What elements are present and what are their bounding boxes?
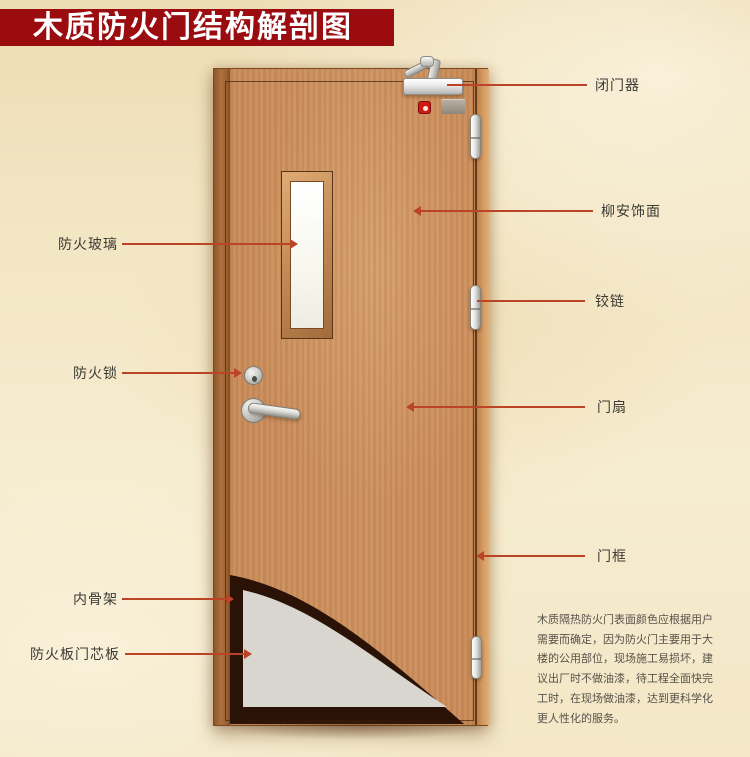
product-description: 木质隔热防火门表面颜色应根据用户 需要而确定，因为防火门主要用于大 楼的公用部位… [537,611,723,729]
label-fire-lock: 防火锁 [18,365,118,381]
leader-line-door-closer [447,84,587,86]
arrow-fire-lock [234,368,242,378]
label-fire-glass: 防火玻璃 [18,236,118,252]
title-banner: 木质防火门结构解剖图 [0,9,394,46]
leader-line-fire-board-core [125,653,244,655]
cutaway-section [214,69,489,727]
door-closer-pivot [420,56,434,67]
fire-board-core-layer [243,590,447,707]
description-line: 议出厂时不做油漆，待工程全面快完 [537,670,723,690]
label-lauan-veneer: 柳安饰面 [601,203,661,219]
description-line: 更人性化的服务。 [537,710,723,730]
leader-line-fire-glass [122,243,290,245]
leader-line-fire-lock [122,372,234,374]
poster: 木质防火门结构解剖图 防火玻璃 防火锁 内骨架 防火板门芯板 [0,0,750,757]
label-hinge: 铰链 [595,293,625,309]
label-fire-board-core: 防火板门芯板 [20,646,120,662]
label-door-closer: 闭门器 [595,77,640,93]
label-door-frame: 门框 [597,548,627,564]
fire-door-illustration [213,68,488,726]
label-inner-skeleton: 内骨架 [18,591,118,607]
arrow-fire-board-core [244,649,252,659]
leader-line-inner-skeleton [122,598,226,600]
label-door-leaf: 门扇 [597,399,627,415]
description-line: 木质隔热防火门表面颜色应根据用户 [537,611,723,631]
description-line: 需要而确定，因为防火门主要用于大 [537,631,723,651]
description-line: 楼的公用部位，现场施工易损坏，建 [537,650,723,670]
page-title: 木质防火门结构解剖图 [0,9,394,46]
leader-line-hinge [477,300,585,302]
arrow-fire-glass [290,239,298,249]
leader-line-lauan-veneer [420,210,593,212]
leader-line-door-leaf [413,406,585,408]
arrow-inner-skeleton [226,594,234,604]
description-line: 工时，在现场做油漆，达到更科学化 [537,690,723,710]
leader-line-door-frame [483,555,585,557]
door-floor-shadow [216,720,494,740]
